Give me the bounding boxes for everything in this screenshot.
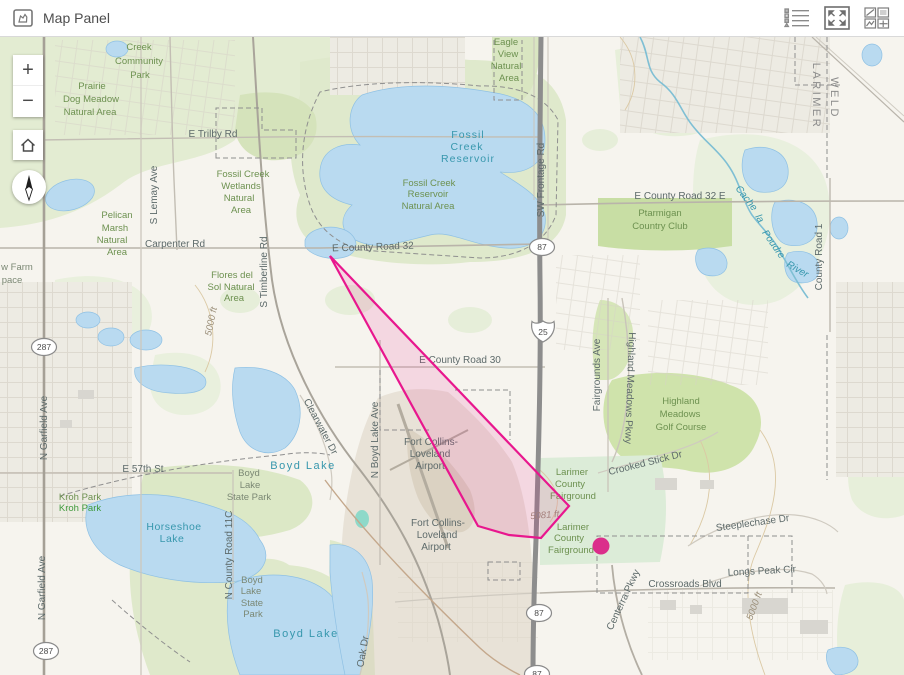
panel-header: Map Panel (0, 0, 904, 37)
map-panel-window: Map Panel (0, 0, 904, 675)
map-label: Larimer (556, 467, 588, 478)
map-label: Fairgrounds Ave (592, 338, 603, 411)
highlight-point[interactable] (593, 538, 610, 555)
map-label: Dog Meadow (63, 94, 119, 105)
map-label: Park (130, 70, 150, 81)
map-label: Community (115, 56, 163, 67)
us-route-shield: 287 (34, 643, 59, 660)
map-label: Crossroads Blvd (648, 579, 721, 590)
map-label: Highland (662, 396, 700, 407)
svg-text:25: 25 (538, 327, 548, 337)
expand-icon[interactable] (824, 6, 850, 30)
map-label: Wetlands (221, 181, 261, 192)
svg-text:87: 87 (537, 242, 547, 252)
map-label: Boyd (238, 468, 260, 479)
map-label: View (498, 49, 519, 60)
map-label: Fairground (548, 545, 594, 556)
map-label: Carpenter Rd (145, 239, 205, 250)
map-label: Area (107, 247, 128, 258)
map-label: Natural (224, 193, 255, 204)
map-label: E Trilby Rd (189, 129, 238, 140)
map-label: Flores del (211, 270, 253, 281)
map-label: Pelican (101, 210, 132, 221)
us-route-shield: 87 (527, 605, 552, 622)
map-label: Reservoir (441, 153, 495, 165)
map-label: Fort Collins- (411, 518, 465, 529)
compass-needle-icon (12, 170, 46, 204)
us-route-shield: 287 (32, 339, 57, 356)
svg-text:87: 87 (532, 669, 542, 675)
map-label: Creek (450, 141, 483, 153)
map-label: Area (224, 293, 245, 304)
map-label: Natural Area (402, 201, 456, 212)
us-route-shield: 87 (530, 239, 555, 256)
basemap: CreekCommunityParkPrairieDog MeadowNatur… (0, 37, 904, 675)
map-label: Larimer (557, 522, 589, 533)
map-label: Meadows (660, 409, 701, 420)
map-label: State Park (227, 492, 272, 503)
map-label: LARIMER (810, 63, 822, 129)
map-label: Boyd Lake (273, 628, 338, 640)
map-label: Loveland (417, 530, 458, 541)
map-label: S Timberline Rd (259, 236, 270, 307)
map-label: County (555, 479, 585, 490)
map-label: w Farm (0, 262, 33, 273)
map-label: Park (243, 609, 263, 620)
map-label: Area (499, 73, 520, 84)
map-label: Creek (126, 42, 152, 53)
zoom-control: + − (13, 55, 43, 117)
map-label: Natural (97, 235, 128, 246)
map-label: N Boyd Lake Ave (370, 401, 381, 478)
widget-gallery-icon[interactable] (864, 6, 890, 30)
map-label: Fossil Creek (403, 178, 456, 189)
zoom-in-button[interactable]: + (13, 55, 43, 86)
map-label: N County Road 11C (224, 511, 235, 600)
map-canvas[interactable]: CreekCommunityParkPrairieDog MeadowNatur… (0, 37, 904, 675)
map-label: S Lemay Ave (149, 165, 160, 224)
zoom-out-button[interactable]: − (13, 86, 43, 117)
map-label: SW Frontage Rd (536, 143, 547, 217)
map-label: Fossil Creek (217, 169, 270, 180)
map-label: E County Road 32 E (634, 191, 725, 202)
compass-button[interactable] (12, 170, 46, 204)
map-label: N Garfield Ave (39, 395, 50, 460)
map-label: Boyd (241, 575, 263, 586)
map-label: WELD (828, 77, 840, 119)
map-label: Natural (491, 61, 522, 72)
svg-text:87: 87 (534, 608, 544, 618)
svg-text:287: 287 (37, 342, 51, 352)
map-label: Ptarmigan (638, 208, 681, 219)
map-label: Lake (160, 533, 185, 545)
map-label: Lake (240, 480, 261, 491)
map-label: Natural Area (64, 107, 118, 118)
map-label: Country Club (632, 221, 687, 232)
map-label: Boyd Lake (270, 460, 335, 472)
map-label: Marsh (102, 223, 128, 234)
map-label: N Garfield Ave (37, 555, 48, 620)
map-label: Prairie (78, 81, 105, 92)
map-label: Kroh Park (59, 492, 101, 503)
legend-list-icon[interactable] (784, 6, 810, 30)
home-icon (20, 138, 36, 153)
map-label: pace (2, 275, 23, 286)
map-label: County Road 1 (814, 223, 825, 290)
map-label: County (554, 533, 584, 544)
map-label: Airport (415, 461, 445, 472)
map-label: Golf Course (656, 422, 707, 433)
svg-text:287: 287 (39, 646, 53, 656)
page-title: Map Panel (43, 10, 110, 26)
map-label: Eagle (494, 37, 518, 48)
map-label: Horseshoe (146, 521, 201, 533)
map-label: Airport (421, 542, 451, 553)
map-label: E 57th St (122, 464, 163, 475)
home-button[interactable] (13, 130, 43, 160)
map-label: Area (231, 205, 252, 216)
map-label: Kroh Park (59, 503, 101, 514)
map-label: Fossil (451, 129, 484, 141)
map-panel-icon (13, 9, 33, 27)
map-label: State (241, 598, 263, 609)
map-label: Sol Natural (208, 282, 255, 293)
map-label: Reservoir (408, 189, 449, 200)
map-label: Lake (241, 586, 262, 597)
